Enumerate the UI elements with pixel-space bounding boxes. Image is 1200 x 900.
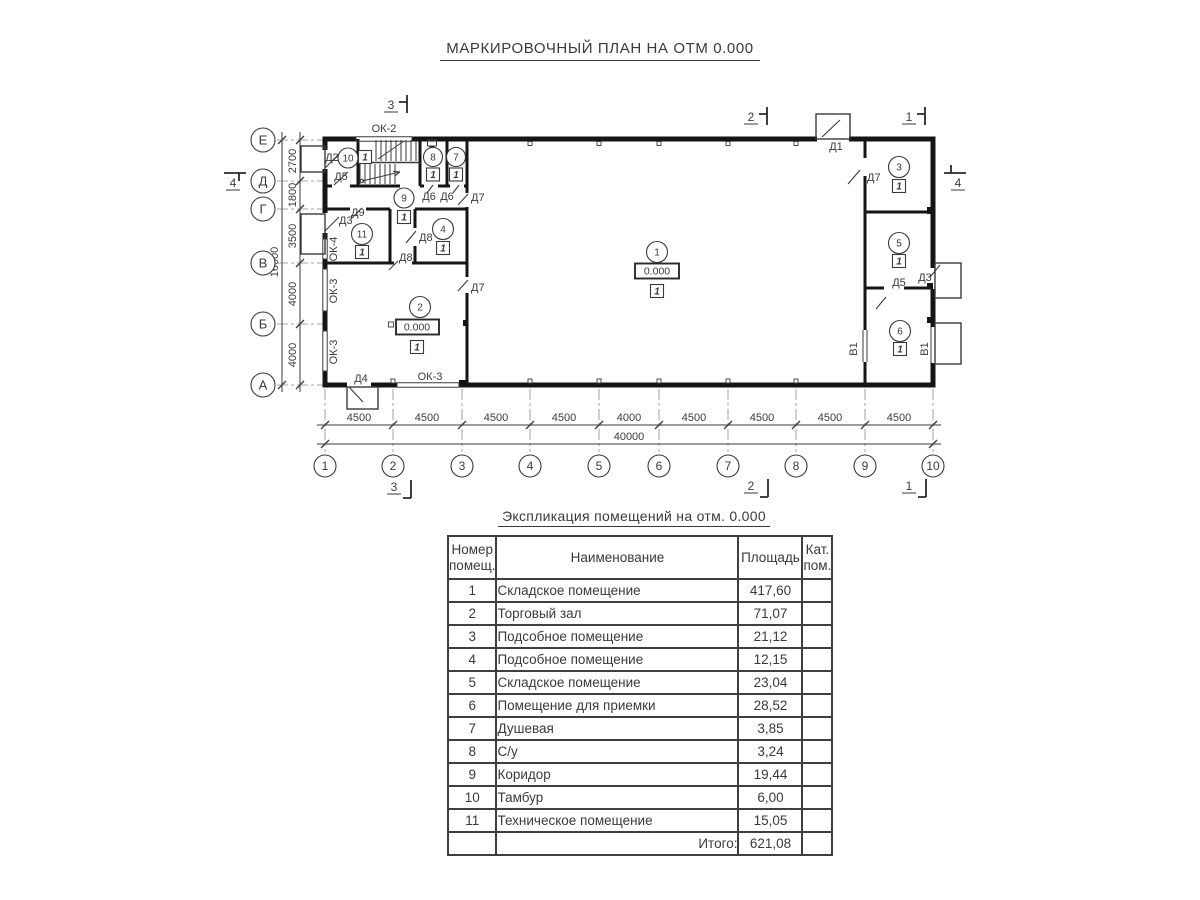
cell-cat: [802, 809, 832, 832]
header-name: Наименование: [496, 536, 738, 579]
drawing-sheet: МАРКИРОВОЧНЫЙ ПЛАН НА ОТМ 0.000 4500 450…: [0, 0, 1200, 900]
room-5: 5: [896, 239, 902, 250]
type-5: 1: [896, 257, 902, 268]
door-label-d7-room2: Д7: [471, 282, 485, 294]
header-area: Площадь: [738, 536, 802, 579]
window-label-ok2: ОК-2: [372, 123, 397, 135]
row-axis-d: Д: [259, 174, 268, 189]
cell-name: Тамбур: [496, 786, 738, 809]
door-label-d2: Д2: [325, 152, 339, 164]
gate-label-v1-left: В1: [848, 342, 860, 355]
cell-num: 6: [448, 694, 496, 717]
room-3: 3: [896, 163, 902, 174]
window-label-ok3-b: ОК-3: [328, 340, 340, 365]
dim-l-0: 2700: [287, 149, 299, 173]
table-row: 11Техническое помещение15,05: [448, 809, 832, 832]
cell-area: 417,60: [738, 579, 802, 602]
col-axis-4: 4: [527, 459, 534, 473]
total-label: Итого:: [496, 832, 738, 855]
cell-cat: [802, 602, 832, 625]
dim-b-5: 4500: [682, 412, 706, 424]
dim-b-1: 4500: [415, 412, 439, 424]
table-row: 7Душевая3,85: [448, 717, 832, 740]
cell-num: 2: [448, 602, 496, 625]
room-markers: 1 2 3 4 5 6 7 8 9 10 11: [338, 148, 911, 342]
door-label-d4: Д4: [354, 373, 368, 385]
door-label-d3-right: Д3: [918, 272, 932, 284]
door-label-d6-a: Д6: [422, 191, 436, 203]
room-8: 8: [430, 153, 436, 164]
row-axis-b: Б: [259, 317, 268, 332]
room-2: 2: [417, 303, 423, 314]
dim-b-3: 4500: [552, 412, 576, 424]
explication-table: Номерпомещ. Наименование Площадь Кат.пом…: [447, 535, 833, 856]
door-label-d8-room4: Д8: [419, 232, 433, 244]
header-room-number: Номерпомещ.: [448, 536, 496, 579]
type-6: 1: [897, 345, 903, 356]
column-bubbles: 1 2 3 4 5 6 7 8 9 10: [314, 455, 944, 477]
cell-cat: [802, 717, 832, 740]
table-row: 4Подсобное помещение12,15: [448, 648, 832, 671]
cell-name: Помещение для приемки: [496, 694, 738, 717]
type-11: 1: [359, 248, 365, 259]
cell-name: Душевая: [496, 717, 738, 740]
row-axis-a: А: [259, 378, 268, 393]
row-axis-e: Е: [259, 133, 268, 148]
cell-name: Складское помещение: [496, 579, 738, 602]
cell-area: 21,12: [738, 625, 802, 648]
cell-area: 6,00: [738, 786, 802, 809]
table-row: 10Тамбур6,00: [448, 786, 832, 809]
col-axis-10: 10: [926, 459, 940, 473]
col-axis-1: 1: [322, 459, 329, 473]
table-total-row: Итого:621,08: [448, 832, 832, 855]
type-3: 1: [896, 182, 902, 193]
cell-name: Коридор: [496, 763, 738, 786]
table-row: 8С/у3,24: [448, 740, 832, 763]
section-3-bottom: 3: [391, 480, 398, 494]
dim-b-0: 4500: [347, 412, 371, 424]
cell-area: 15,05: [738, 809, 802, 832]
cell-cat: [802, 786, 832, 809]
cell-area: 28,52: [738, 694, 802, 717]
cell-num: 3: [448, 625, 496, 648]
cell-area: 23,04: [738, 671, 802, 694]
row-axis-g: Г: [259, 202, 266, 217]
dim-l-1: 1800: [287, 183, 299, 207]
cell-area: 19,44: [738, 763, 802, 786]
door-label-d1: Д1: [829, 141, 843, 153]
type-7: 1: [453, 170, 459, 181]
dim-l-2: 3500: [287, 224, 299, 248]
dim-l-3: 4000: [287, 282, 299, 306]
dim-b-6: 4500: [750, 412, 774, 424]
type-1: 1: [654, 287, 660, 298]
table-row: 1Складское помещение417,60: [448, 579, 832, 602]
gate-label-v1-right: В1: [919, 342, 931, 355]
cell-num: 8: [448, 740, 496, 763]
cell-cat: [802, 740, 832, 763]
window-label-ok3-bottom: ОК-3: [418, 371, 443, 383]
door-label-d9: Д9: [351, 207, 365, 219]
room-1: 1: [654, 248, 660, 259]
cell-cat: [802, 832, 832, 855]
table-row: 5Складское помещение23,04: [448, 671, 832, 694]
cell-cat: [802, 625, 832, 648]
section-1-top: 1: [906, 110, 913, 124]
explication-title: Экспликация помещений на отм. 0.000: [447, 508, 821, 527]
cell-area: 12,15: [738, 648, 802, 671]
room-9: 9: [401, 194, 407, 205]
col-axis-5: 5: [596, 459, 603, 473]
cell-name: Подсобное помещение: [496, 648, 738, 671]
col-axis-6: 6: [656, 459, 663, 473]
room-10: 10: [342, 154, 354, 165]
dim-b-7: 4500: [818, 412, 842, 424]
cell-num: 9: [448, 763, 496, 786]
col-axis-9: 9: [862, 459, 869, 473]
cell-area: 3,24: [738, 740, 802, 763]
col-axis-8: 8: [793, 459, 800, 473]
cell-name: С/у: [496, 740, 738, 763]
dim-b-8: 4500: [887, 412, 911, 424]
type-9: 1: [401, 213, 407, 224]
room-7: 7: [453, 153, 459, 164]
door-label-d6-b: Д6: [440, 191, 454, 203]
col-axis-7: 7: [725, 459, 732, 473]
level-marks: 0.000 0.000: [389, 264, 680, 335]
cell-cat: [802, 694, 832, 717]
table-row: 9Коридор19,44: [448, 763, 832, 786]
level-room2: 0.000: [404, 322, 430, 334]
room-6: 6: [897, 327, 903, 338]
dim-b-total: 40000: [614, 431, 645, 443]
room-11: 11: [357, 230, 368, 241]
cell-num-empty: [448, 832, 496, 855]
dimensions-bottom: 4500 4500 4500 4500 4000 4500 4500 4500 …: [317, 412, 941, 448]
cell-cat: [802, 579, 832, 602]
section-4-left: 4: [230, 176, 237, 190]
cell-cat: [802, 648, 832, 671]
door-label-d7-corridor: Д7: [471, 192, 485, 204]
col-axis-3: 3: [459, 459, 466, 473]
floor-plan: 4500 4500 4500 4500 4000 4500 4500 4500 …: [0, 0, 1200, 505]
type-2: 1: [414, 343, 420, 354]
row-bubbles: Е Д Г В Б А: [251, 128, 275, 397]
cell-num: 10: [448, 786, 496, 809]
cell-name: Торговый зал: [496, 602, 738, 625]
cell-num: 4: [448, 648, 496, 671]
level-room1: 0.000: [644, 266, 670, 278]
dim-b-2: 4500: [484, 412, 508, 424]
cell-cat: [802, 671, 832, 694]
section-3-top: 3: [388, 98, 395, 112]
window-label-ok3-a: ОК-3: [328, 279, 340, 304]
type-4: 1: [440, 244, 446, 255]
dim-l-4: 4000: [287, 343, 299, 367]
explication-title-text: Экспликация помещений на отм. 0.000: [498, 508, 770, 527]
row-axis-v: В: [259, 256, 268, 271]
cell-num: 1: [448, 579, 496, 602]
cell-num: 11: [448, 809, 496, 832]
col-axis-2: 2: [390, 459, 397, 473]
dim-b-4: 4000: [617, 412, 641, 424]
cell-area: 3,85: [738, 717, 802, 740]
cell-name: Техническое помещение: [496, 809, 738, 832]
room-4: 4: [440, 225, 446, 236]
section-1-bottom: 1: [906, 479, 913, 493]
cell-name: Подсобное помещение: [496, 625, 738, 648]
section-4-right: 4: [955, 176, 962, 190]
section-2-bottom: 2: [748, 479, 755, 493]
door-label-d5-right: Д5: [892, 277, 906, 289]
cell-cat: [802, 763, 832, 786]
cell-name: Складское помещение: [496, 671, 738, 694]
type-8: 1: [430, 170, 436, 181]
section-2-top: 2: [748, 110, 755, 124]
cell-area: 71,07: [738, 602, 802, 625]
table-header-row: Номерпомещ. Наименование Площадь Кат.пом…: [448, 536, 832, 579]
table-row: 6Помещение для приемки28,52: [448, 694, 832, 717]
door-label-d8-room2: Д8: [399, 252, 413, 264]
cell-num: 7: [448, 717, 496, 740]
header-category: Кат.пом.: [802, 536, 832, 579]
door-label-d7-right: Д7: [867, 172, 881, 184]
type-10: 1: [362, 153, 368, 164]
cell-num: 5: [448, 671, 496, 694]
door-label-d3-left: Д3: [339, 215, 353, 227]
total-value: 621,08: [738, 832, 802, 855]
table-row: 2Торговый зал71,07: [448, 602, 832, 625]
window-label-ok4: ОК-4: [328, 237, 340, 262]
door-label-d5-tambour: Д5: [334, 171, 348, 183]
table-row: 3Подсобное помещение21,12: [448, 625, 832, 648]
